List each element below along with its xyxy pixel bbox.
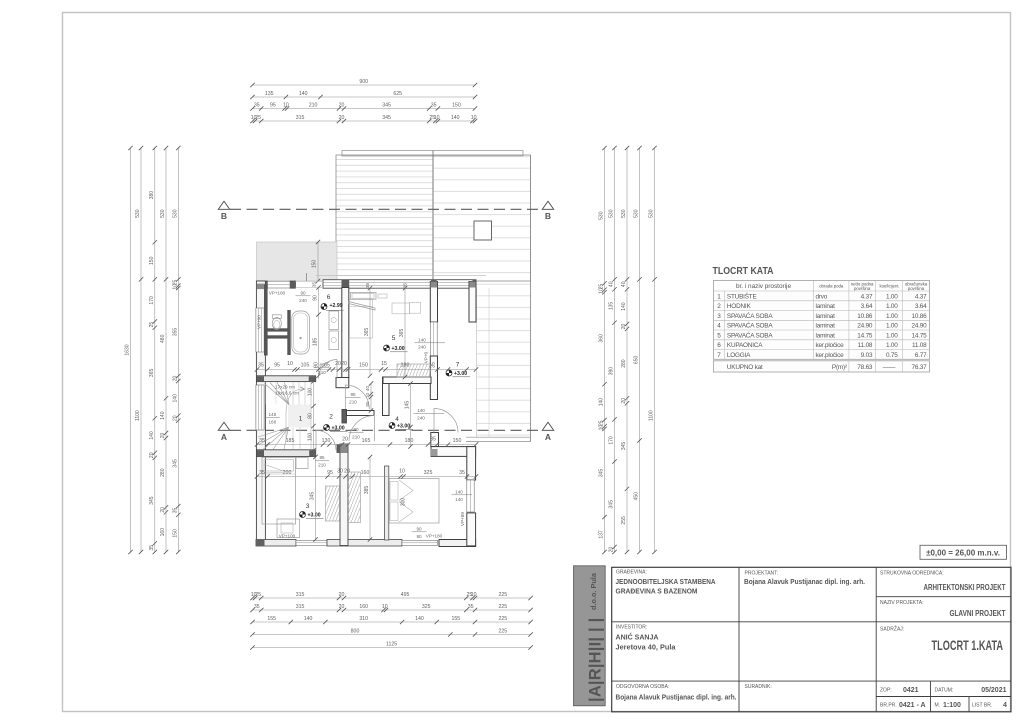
- svg-text:150: 150: [453, 438, 462, 444]
- svg-text:VP+180: VP+180: [426, 534, 443, 539]
- svg-text:140: 140: [415, 616, 424, 622]
- svg-text:3.64: 3.64: [915, 303, 927, 310]
- svg-text:10.86: 10.86: [912, 313, 928, 320]
- svg-text:10: 10: [283, 103, 289, 109]
- svg-text:B: B: [221, 211, 227, 221]
- svg-text:100: 100: [308, 433, 314, 442]
- svg-text:10: 10: [365, 393, 370, 399]
- svg-text:HODNIK: HODNIK: [727, 303, 752, 310]
- svg-text:80: 80: [308, 413, 314, 419]
- svg-text:INVESTITOR:: INVESTITOR:: [616, 625, 647, 631]
- svg-text:PROJEKTANT:: PROJEKTANT:: [745, 571, 779, 577]
- svg-text:Bojana Alavuk Pustijanac dipl.: Bojana Alavuk Pustijanac dipl. ing. arh.: [744, 577, 865, 586]
- svg-text:20: 20: [149, 452, 155, 458]
- svg-text:140: 140: [451, 115, 460, 121]
- svg-text:0421 - A: 0421 - A: [899, 702, 926, 709]
- svg-text:140: 140: [149, 431, 155, 440]
- svg-text:20: 20: [339, 604, 345, 610]
- svg-text:225: 225: [498, 604, 507, 610]
- svg-text:GRAĐEVINA S BAZENOM: GRAĐEVINA S BAZENOM: [616, 587, 698, 596]
- svg-text:95: 95: [274, 363, 280, 369]
- svg-text:ker.pločice: ker.pločice: [816, 342, 845, 349]
- svg-text:A: A: [545, 432, 551, 442]
- svg-text:130: 130: [322, 438, 331, 444]
- svg-text:35: 35: [254, 604, 260, 610]
- svg-text:Bojana Alavuk Pustijanac dipl.: Bojana Alavuk Pustijanac dipl. ing. arh.: [616, 693, 737, 702]
- svg-text:240: 240: [418, 345, 426, 350]
- svg-text:30: 30: [337, 469, 343, 475]
- svg-text:4: 4: [1003, 702, 1007, 709]
- svg-text:150: 150: [312, 260, 318, 269]
- svg-text:laminat: laminat: [816, 313, 836, 320]
- svg-text:155: 155: [267, 616, 276, 622]
- svg-text:365: 365: [399, 329, 405, 338]
- svg-text:365: 365: [364, 328, 370, 337]
- svg-text:VP+180: VP+180: [269, 291, 286, 296]
- svg-text:20: 20: [344, 469, 350, 475]
- svg-text:GRAĐEVINA:: GRAĐEVINA:: [616, 570, 647, 576]
- svg-text:20: 20: [335, 361, 341, 367]
- svg-text:10: 10: [471, 115, 477, 121]
- svg-text:LIST BR.: LIST BR.: [972, 703, 992, 709]
- svg-text:225: 225: [498, 616, 507, 622]
- svg-text:0.75: 0.75: [886, 352, 898, 359]
- svg-text:150: 150: [452, 103, 461, 109]
- svg-text:148: 148: [268, 412, 276, 417]
- svg-text:35: 35: [312, 282, 317, 288]
- svg-text:br. i naziv prostorije: br. i naziv prostorije: [736, 283, 791, 290]
- svg-text:1.00: 1.00: [886, 303, 898, 310]
- svg-text:210: 210: [309, 103, 318, 109]
- svg-text:ODGOVORNA OSOBA:: ODGOVORNA OSOBA:: [616, 684, 669, 690]
- svg-text:10: 10: [399, 469, 405, 475]
- svg-text:20: 20: [621, 324, 627, 330]
- svg-text:20: 20: [609, 547, 615, 553]
- svg-text:+2.99: +2.99: [330, 303, 343, 309]
- svg-text:koeficijent: koeficijent: [879, 284, 899, 289]
- svg-text:15: 15: [381, 361, 387, 367]
- svg-text:6.77: 6.77: [915, 352, 927, 359]
- svg-text:1.00: 1.00: [886, 342, 898, 349]
- svg-text:210: 210: [352, 435, 360, 440]
- svg-text:površina: površina: [908, 286, 925, 291]
- svg-text:10: 10: [287, 361, 293, 367]
- svg-text:140: 140: [455, 490, 463, 495]
- svg-text:1:100: 1:100: [943, 702, 961, 709]
- svg-text:10: 10: [599, 425, 605, 431]
- svg-text:+3.00: +3.00: [392, 346, 405, 352]
- svg-text:1125: 1125: [386, 642, 397, 648]
- svg-text:90: 90: [300, 291, 306, 296]
- svg-text:3.64: 3.64: [861, 303, 873, 310]
- svg-text:11.08: 11.08: [912, 342, 927, 349]
- svg-text:±0,00 = 26,00 m.n.v.: ±0,00 = 26,00 m.n.v.: [926, 548, 1000, 557]
- svg-text:VP+90: VP+90: [257, 315, 262, 329]
- svg-text:ZOP:: ZOP:: [880, 688, 892, 694]
- svg-text:185: 185: [286, 438, 295, 444]
- svg-text:150: 150: [173, 529, 179, 538]
- svg-text:900: 900: [359, 79, 368, 85]
- svg-text:35: 35: [259, 470, 265, 476]
- svg-text:315: 315: [296, 115, 305, 121]
- svg-text:85: 85: [319, 455, 325, 460]
- svg-text:SADRŽAJ:: SADRŽAJ:: [880, 625, 904, 633]
- svg-text:SPAVAĆA SOBA: SPAVAĆA SOBA: [727, 321, 773, 330]
- svg-text:140: 140: [599, 398, 605, 407]
- svg-text:90: 90: [416, 534, 422, 539]
- svg-text:155: 155: [451, 616, 460, 622]
- svg-text:95: 95: [327, 470, 333, 476]
- svg-text:11.08: 11.08: [858, 342, 873, 349]
- svg-text:3: 3: [306, 503, 310, 510]
- svg-text:76.37: 76.37: [912, 364, 928, 371]
- svg-text:95: 95: [350, 392, 356, 397]
- svg-text:140: 140: [299, 91, 308, 97]
- svg-text:140: 140: [417, 408, 425, 413]
- svg-text:10: 10: [382, 604, 388, 610]
- svg-text:300: 300: [401, 498, 407, 507]
- svg-text:VP+89: VP+89: [460, 512, 465, 526]
- svg-text:20: 20: [160, 507, 166, 513]
- svg-text:ANIĆ SANJA: ANIĆ SANJA: [616, 633, 660, 642]
- svg-text:24.90: 24.90: [857, 323, 873, 330]
- svg-text:345: 345: [609, 500, 615, 509]
- svg-text:20: 20: [342, 437, 348, 443]
- svg-text:NAZIV PROJEKTA:: NAZIV PROJEKTA:: [880, 600, 924, 606]
- svg-text:10: 10: [599, 288, 605, 294]
- svg-text:35: 35: [459, 470, 465, 476]
- svg-text:137: 137: [599, 530, 605, 539]
- svg-text:35: 35: [468, 604, 474, 610]
- svg-text:325: 325: [422, 604, 431, 610]
- svg-text:390: 390: [609, 367, 615, 376]
- svg-text:STUBIŠTE: STUBIŠTE: [727, 291, 757, 300]
- svg-text:1.00: 1.00: [886, 313, 898, 320]
- svg-text:1.00: 1.00: [886, 332, 898, 339]
- svg-text:9.03: 9.03: [861, 352, 873, 359]
- svg-text:345: 345: [382, 115, 391, 121]
- svg-text:20: 20: [173, 376, 179, 382]
- svg-text:145: 145: [405, 401, 411, 410]
- svg-text:90: 90: [416, 527, 422, 532]
- svg-text:4.37: 4.37: [915, 293, 927, 300]
- svg-text:laminat: laminat: [816, 323, 836, 330]
- svg-text:210: 210: [349, 400, 357, 405]
- svg-text:25: 25: [255, 115, 261, 121]
- svg-text:380: 380: [149, 191, 155, 200]
- svg-text:90: 90: [313, 295, 319, 301]
- svg-text:1630: 1630: [125, 344, 131, 355]
- svg-text:35: 35: [430, 437, 436, 443]
- svg-text:385: 385: [364, 486, 370, 495]
- svg-text:SPAVAĆA SOBA: SPAVAĆA SOBA: [727, 311, 773, 320]
- svg-text:530: 530: [173, 209, 179, 218]
- svg-text:280: 280: [621, 359, 627, 368]
- svg-text:530: 530: [609, 209, 615, 218]
- svg-text:2: 2: [329, 414, 333, 421]
- svg-text:14.75: 14.75: [857, 332, 873, 339]
- svg-text:+3.00: +3.00: [308, 513, 321, 519]
- svg-text:1.00: 1.00: [886, 293, 898, 300]
- svg-text:160: 160: [359, 604, 368, 610]
- svg-text:650: 650: [634, 356, 640, 365]
- svg-text:90: 90: [353, 427, 359, 432]
- svg-text:530: 530: [135, 209, 141, 218]
- svg-text:4: 4: [395, 416, 399, 423]
- svg-text:20: 20: [173, 415, 179, 421]
- svg-text:140: 140: [455, 497, 463, 502]
- svg-text:180: 180: [405, 438, 414, 444]
- svg-text:35: 35: [149, 545, 155, 551]
- svg-text:160: 160: [361, 470, 370, 476]
- svg-text:+3.00: +3.00: [332, 426, 345, 432]
- svg-text:255: 255: [621, 516, 627, 525]
- svg-text:10: 10: [173, 284, 179, 290]
- svg-text:10: 10: [434, 115, 440, 121]
- svg-text:6: 6: [327, 294, 331, 301]
- svg-text:20: 20: [339, 115, 345, 121]
- svg-text:|A|R|H|I| | |: |A|R|H|I| | |: [587, 618, 605, 702]
- svg-text:85: 85: [319, 363, 325, 368]
- svg-text:25: 25: [149, 322, 155, 328]
- svg-text:100: 100: [308, 388, 314, 397]
- svg-text:140: 140: [304, 616, 313, 622]
- svg-text:35: 35: [431, 362, 437, 368]
- svg-text:laminat: laminat: [816, 332, 836, 339]
- svg-text:24.90: 24.90: [912, 323, 928, 330]
- svg-text:225: 225: [498, 629, 507, 635]
- svg-text:10.86: 10.86: [857, 313, 873, 320]
- svg-text:14.75: 14.75: [912, 332, 928, 339]
- svg-text:105: 105: [301, 363, 310, 369]
- svg-text:325: 325: [424, 470, 433, 476]
- svg-text:530: 530: [621, 209, 627, 218]
- svg-text:450: 450: [634, 492, 640, 501]
- svg-text:P(m)²: P(m)²: [832, 364, 847, 371]
- svg-text:1100: 1100: [135, 410, 141, 421]
- svg-text:140: 140: [418, 338, 426, 343]
- svg-text:DATUM:: DATUM:: [935, 688, 954, 694]
- svg-text:85: 85: [365, 401, 370, 407]
- svg-text:345: 345: [599, 469, 605, 478]
- svg-text:35: 35: [259, 438, 265, 444]
- svg-text:SURADNIK:: SURADNIK:: [745, 684, 772, 690]
- svg-text:345: 345: [310, 492, 316, 501]
- svg-text:315: 315: [296, 592, 305, 598]
- svg-text:20: 20: [621, 398, 627, 404]
- svg-text:35: 35: [403, 283, 408, 289]
- svg-text:VP+100: VP+100: [279, 534, 296, 539]
- svg-text:obrada poda: obrada poda: [819, 284, 844, 289]
- svg-text:530: 530: [160, 209, 166, 218]
- svg-text:SPAVAĆA SOBA: SPAVAĆA SOBA: [727, 330, 773, 339]
- svg-text:+3.00: +3.00: [397, 424, 410, 430]
- svg-text:530: 530: [634, 209, 640, 218]
- svg-text:KUPAONICA: KUPAONICA: [727, 342, 763, 349]
- svg-text:JEDNOOBITELJSKA STAMBENA: JEDNOOBITELJSKA STAMBENA: [616, 577, 716, 586]
- svg-text:210: 210: [318, 463, 326, 468]
- svg-text:150: 150: [359, 363, 368, 369]
- svg-text:135: 135: [609, 302, 615, 311]
- svg-text:drvo: drvo: [816, 293, 828, 300]
- svg-text:A: A: [221, 432, 227, 442]
- svg-text:185: 185: [313, 338, 319, 347]
- svg-text:355: 355: [173, 328, 179, 337]
- svg-text:240: 240: [417, 416, 425, 421]
- svg-text:78.63: 78.63: [857, 364, 873, 371]
- svg-text:310: 310: [359, 616, 368, 622]
- svg-text:200: 200: [283, 470, 292, 476]
- svg-text:VP+0: VP+0: [424, 351, 429, 363]
- svg-text:530: 530: [599, 211, 605, 220]
- svg-text:530: 530: [649, 209, 655, 218]
- svg-text:1: 1: [299, 416, 303, 423]
- svg-text:TLOCRT KATA: TLOCRT KATA: [713, 265, 774, 277]
- svg-text:d.o.o. Pula: d.o.o. Pula: [589, 572, 598, 610]
- svg-text:35: 35: [254, 103, 260, 109]
- svg-text:20: 20: [160, 433, 166, 439]
- svg-text:+3.00: +3.00: [454, 371, 467, 377]
- svg-text:1100: 1100: [649, 410, 655, 421]
- svg-text:35: 35: [365, 283, 370, 289]
- svg-text:480: 480: [160, 334, 166, 343]
- svg-text:površina: površina: [854, 286, 871, 291]
- svg-text:20: 20: [341, 361, 347, 367]
- svg-text:40: 40: [621, 281, 627, 287]
- svg-text:150: 150: [149, 256, 155, 265]
- svg-text:7: 7: [456, 362, 460, 369]
- svg-text:17x29 cm: 17x29 cm: [275, 385, 295, 390]
- svg-text:TLOCRT 1.KATA: TLOCRT 1.KATA: [932, 638, 1004, 653]
- svg-text:315: 315: [296, 604, 305, 610]
- svg-text:1.00: 1.00: [886, 323, 898, 330]
- svg-text:40: 40: [365, 386, 370, 392]
- svg-text:20: 20: [339, 592, 345, 598]
- svg-text:4.37: 4.37: [861, 293, 873, 300]
- svg-text:GLAVNI PROJEKT: GLAVNI PROJEKT: [950, 609, 1006, 618]
- svg-text:800: 800: [351, 629, 360, 635]
- svg-text:345: 345: [173, 459, 179, 468]
- svg-text:168: 168: [268, 420, 276, 425]
- svg-text:ker.pločice: ker.pločice: [816, 352, 845, 359]
- svg-text:365: 365: [149, 369, 155, 378]
- svg-text:BR.PR.: BR.PR.: [880, 703, 897, 709]
- svg-text:160: 160: [160, 528, 166, 537]
- svg-text:625: 625: [393, 91, 402, 97]
- svg-text:05/2021: 05/2021: [981, 687, 1006, 694]
- svg-text:170: 170: [609, 436, 615, 445]
- svg-text:——: ——: [883, 364, 896, 371]
- svg-text:95: 95: [270, 103, 276, 109]
- svg-text:LOGGIA: LOGGIA: [727, 352, 751, 359]
- svg-text:170: 170: [149, 296, 155, 305]
- svg-text:25: 25: [255, 592, 261, 598]
- svg-text:0421: 0421: [903, 687, 919, 694]
- svg-text:165: 165: [362, 438, 371, 444]
- svg-text:35: 35: [173, 508, 179, 514]
- svg-text:UKUPNO kat: UKUPNO kat: [727, 364, 763, 371]
- svg-text:210: 210: [318, 370, 326, 375]
- svg-text:5: 5: [392, 335, 396, 342]
- svg-text:STRUKOVNA ODREDNICA:: STRUKOVNA ODREDNICA:: [880, 571, 944, 577]
- svg-text:18x16,6 cm: 18x16,6 cm: [275, 391, 299, 396]
- svg-text:10: 10: [471, 592, 477, 598]
- svg-text:345: 345: [621, 442, 627, 451]
- svg-text:345: 345: [382, 103, 391, 109]
- svg-text:35: 35: [258, 363, 264, 369]
- svg-text:ARHITEKTONSKI PROJEKT: ARHITEKTONSKI PROJEKT: [924, 583, 1006, 592]
- svg-text:135: 135: [265, 91, 274, 97]
- svg-text:20: 20: [339, 103, 345, 109]
- svg-text:Jeretova 40, Pula: Jeretova 40, Pula: [616, 643, 677, 652]
- svg-text:280: 280: [160, 468, 166, 477]
- svg-text:40: 40: [609, 281, 615, 287]
- svg-text:140: 140: [621, 302, 627, 311]
- svg-text:225: 225: [498, 592, 507, 598]
- svg-text:495: 495: [401, 592, 410, 598]
- svg-text:140: 140: [173, 394, 179, 403]
- svg-text:35: 35: [431, 103, 437, 109]
- svg-text:240: 240: [299, 298, 307, 303]
- svg-text:B: B: [545, 211, 551, 221]
- svg-text:laminat: laminat: [816, 303, 836, 310]
- svg-text:360: 360: [599, 334, 605, 343]
- svg-text:M.: M.: [935, 703, 941, 709]
- svg-text:345: 345: [149, 496, 155, 505]
- svg-text:140: 140: [160, 411, 166, 420]
